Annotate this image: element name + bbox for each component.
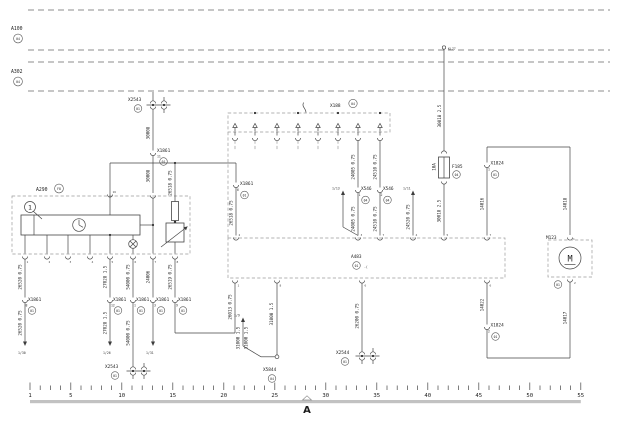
- wire-label-26520-dn: 26520 0.75: [18, 310, 23, 336]
- terminal-kl77-label: KL77: [448, 47, 456, 51]
- bus-a100-label: A100: [11, 26, 23, 32]
- page-ref-arrow-icon: [108, 342, 112, 347]
- section-bar: [30, 400, 581, 403]
- connector-x546-2-label: X546: [383, 186, 394, 192]
- fuse-upper-contact-icon: [441, 151, 446, 154]
- x188-pin-hooks: [232, 132, 382, 151]
- ruler-number: 30: [322, 393, 329, 399]
- wire-label-30018-lower: 30018 2.5: [437, 199, 442, 222]
- a290-bottom-pin-hook-icon: [44, 257, 49, 260]
- ruler-number: 50: [526, 393, 533, 399]
- motor-m123: M123 1 M 2 01: [546, 235, 592, 288]
- x188-label: X188: [330, 103, 341, 109]
- m123-pin1: 1: [573, 237, 575, 241]
- fuse-f185: [439, 157, 450, 178]
- connector-x1861-1-label: X1861: [136, 297, 150, 303]
- a290-pin-number: 1: [27, 260, 29, 264]
- connector-x546-2-pin: 2: [381, 193, 383, 197]
- ref: 01: [494, 335, 498, 339]
- ref: 01: [243, 194, 247, 198]
- ref: 01: [116, 309, 120, 313]
- connector-x2543-bottom-ref: 01: [113, 374, 117, 378]
- a483-pin: 8: [280, 284, 282, 288]
- connector-x2543-bottom-label: X2543: [105, 364, 119, 370]
- ruler-number: 20: [220, 393, 227, 399]
- wire-label-31000-b: 31000 1.5: [244, 326, 249, 349]
- socket-hook-icon: [22, 300, 27, 303]
- ref: 01: [159, 309, 163, 313]
- connector-x1861-11-label: X1861: [157, 148, 171, 154]
- splice-x5844-label: X5844: [263, 367, 277, 373]
- bus-a302-sheet-ref: 04: [16, 80, 20, 84]
- fuse-rating-label: 10A: [432, 163, 437, 171]
- section-label: A: [303, 405, 311, 416]
- connector-x2544-ref: 01: [343, 360, 347, 364]
- ref: 01: [493, 173, 497, 177]
- connector-x546-1-label: X546: [361, 186, 372, 192]
- wire-label-24510-dn: 24510 0.75: [373, 206, 378, 232]
- fuse-lower-contact-icon: [441, 182, 446, 185]
- connector-x546-1-pin: 1: [359, 193, 361, 197]
- connector-x2543-top: X2543 01 30008: [128, 92, 171, 151]
- bus-a100-sheet-ref: 04: [16, 37, 20, 41]
- ref: 01: [30, 309, 34, 313]
- socket-hook-icon: [130, 300, 135, 303]
- connector-x1861-8-pin: 8: [26, 304, 28, 308]
- connector-x2544: 26200 0.75 X2544 01: [336, 283, 380, 365]
- splice-x5844-ref: 04: [270, 377, 274, 381]
- connector-x1861-1-pin: 1: [134, 304, 136, 308]
- wire-label-27028-dn: 27028 1.5: [103, 311, 108, 334]
- wire-label-26520-up: 26520 0.75: [18, 264, 23, 290]
- callout-1-number: 1: [28, 204, 32, 212]
- fuse-f185-label: F185: [452, 164, 463, 170]
- page-ref-arrow-icon: [151, 342, 155, 347]
- connector-x1861-3-label: X1861: [156, 297, 170, 303]
- ruler: 1 5 10 15 20 25 30 35 40 45 50 55 A: [28, 383, 584, 417]
- a483-pin: 2: [239, 233, 241, 237]
- ruler-number: 45: [475, 393, 482, 399]
- a290-bottom-pin-hook-icon: [107, 257, 112, 260]
- connector-x546-pair: 24005 0.75 X546 1 04 24005 0.75 24510 0.…: [351, 141, 394, 236]
- page-ref-arrow-icon: [341, 191, 345, 196]
- component-a290-label: A290: [36, 187, 48, 193]
- a483-boundary: [228, 238, 505, 278]
- wire-label-14018: 14018: [563, 197, 568, 210]
- a483-pin: 1: [238, 284, 240, 288]
- a290-bottom-pin-hook-icon: [150, 257, 155, 260]
- wire-label-30018-upper: 30018 2.5: [437, 104, 442, 127]
- component-x188: X188 04: [228, 99, 390, 238]
- ref: 04: [386, 199, 390, 203]
- connector-x2543-top-ref: 01: [136, 107, 140, 111]
- connector-x2544-label: X2544: [336, 350, 350, 356]
- motor-letter: M: [567, 255, 572, 265]
- wire-label-26518-dn: 26518 0.75: [229, 200, 234, 226]
- wire-label-27028-up: 27028 1.5: [103, 265, 108, 288]
- bus-rails: A100 04 A302 04: [11, 10, 610, 91]
- wire-label-14022: 14022: [480, 298, 485, 311]
- connector-x2543-bottom: X2543 01: [105, 363, 151, 379]
- a483-pin: 6: [365, 284, 367, 288]
- splice-node-icon: [275, 355, 279, 359]
- connector-x1861-8-label: X1861: [28, 297, 42, 303]
- wire-label-30008-upper: 30008: [146, 126, 151, 139]
- a290-pin16-label: 16: [113, 190, 117, 194]
- ruler-number: 1: [28, 393, 31, 399]
- page-ref-1-30: 1/30: [18, 351, 26, 355]
- wire-label-54000-dn: 54000 0.75: [126, 320, 131, 346]
- page-ref-1-13: 1/13: [332, 187, 340, 191]
- a483-pin: 7: [383, 233, 385, 237]
- wire-label-24520: 24520 0.75: [406, 204, 411, 230]
- a483-label: A483: [351, 254, 362, 260]
- a290-pin-number: 3: [70, 260, 72, 264]
- a290-bottom-pin-hook-icon: [22, 257, 27, 260]
- wire-label-24005-up: 24005 0.75: [351, 154, 356, 180]
- page-ref-1-11: 1/11: [403, 187, 411, 191]
- socket-hook-icon: [150, 153, 155, 156]
- page-ref-arrow-icon: [411, 191, 415, 196]
- connector-x1824-1-pin: 1: [488, 168, 490, 172]
- a483-ref: 01: [355, 264, 359, 268]
- coil-link-icon: [303, 103, 306, 113]
- section-marker-icon: [303, 396, 312, 400]
- ruler-number: 55: [577, 393, 584, 399]
- socket-hook-icon: [172, 300, 177, 303]
- wire-label-14017: 14017: [563, 311, 568, 324]
- wire-label-31000-a: 31000 1.5: [236, 326, 241, 349]
- connector-x2543-top-label: X2543: [128, 97, 142, 103]
- ref: 01: [181, 309, 185, 313]
- a290-pin-number: 2: [49, 260, 51, 264]
- x1861-connector-row: 26520 0.75 X1861 8 01 26520 0.75 1/30 27…: [18, 259, 236, 363]
- lamp-icon: [129, 240, 138, 249]
- a483-pin: 4: [416, 233, 418, 237]
- a290-pin-number: 6: [135, 260, 137, 264]
- a290-element-bar: [21, 215, 140, 235]
- m123-pin2: 2: [574, 281, 576, 285]
- a290-bottom-pin-hook-icon: [65, 257, 70, 260]
- ref: 01: [139, 309, 143, 313]
- component-a483: A483 01 -( 2 3 7 4 5 7 1 8 6 6: [228, 233, 505, 288]
- schematic-canvas: A100 04 A302 04 KL77 30018 2.5 F185 10A …: [0, 0, 617, 423]
- a290-bottom-pin-hook-icon: [130, 257, 135, 260]
- wire-label-24510-up: 24510 0.75: [373, 154, 378, 180]
- connector-x1861-12-label: X1861: [113, 297, 127, 303]
- ruler-number: 15: [169, 393, 176, 399]
- fuse-sheet-ref: 04: [455, 173, 459, 177]
- m123-ref: 01: [556, 283, 560, 287]
- wire-label-30008-lower: 30008: [146, 169, 151, 182]
- component-a290: A290 F8 1 16 26518 0.75: [12, 162, 236, 264]
- connector-x1861-11-pin: 11: [157, 155, 161, 159]
- connector-x1861-9-label: X1861: [178, 297, 192, 303]
- ruler-number: 25: [271, 393, 278, 399]
- a483-pin: 3: [361, 233, 363, 237]
- page-ref-arrow-icon: [23, 342, 27, 347]
- a483-pin: 6: [490, 284, 492, 288]
- connector-x1861-12-pin: 12: [111, 304, 115, 308]
- a290-bottom-pin-hook-icon: [172, 257, 177, 260]
- component-a290-ref: F8: [57, 187, 61, 191]
- page-ref-1-9: 1/9: [234, 314, 240, 318]
- wire-label-26518-up: 26518 0.75: [168, 170, 173, 196]
- wiring-diagram-page: A100 04 A302 04 KL77 30018 2.5 F185 10A …: [0, 0, 617, 423]
- a290-bottom-pin-hook-icon: [87, 257, 92, 260]
- connector-x1861-3-pin: 3: [154, 304, 156, 308]
- connector-x1861-6: X1861 6 01 26518 0.75: [229, 163, 254, 236]
- a483-pin: 5: [447, 233, 449, 237]
- ruler-number: 5: [69, 393, 72, 399]
- connector-x1824-1-label: X1824: [491, 161, 505, 167]
- x188-boundary: [228, 113, 390, 132]
- wire-label-54000-up: 54000 0.75: [126, 264, 131, 290]
- socket-hook-icon: [150, 300, 155, 303]
- bus-a302-label: A302: [11, 69, 23, 75]
- a483-symbol: -(: [364, 265, 368, 269]
- connector-x1824-2-label: X1824: [491, 323, 505, 329]
- ruler-number: 40: [424, 393, 431, 399]
- power-feed-kl77: KL77 30018 2.5 F185 10A 04 30018 2.5: [432, 46, 463, 236]
- connector-x1861-11-ref: 01: [162, 160, 166, 164]
- ref: 04: [364, 199, 368, 203]
- connector-x1861-6-label: X1861: [240, 181, 254, 187]
- a290-pin-number: 5: [112, 260, 114, 264]
- connector-x1824-2-pin: 2: [488, 330, 490, 334]
- wire-label-26013: 26013 0.75: [228, 294, 233, 320]
- rheostat-icon: [161, 223, 188, 247]
- wire-label-26519: 26519 0.75: [168, 264, 173, 290]
- wire-label-26200: 26200 0.75: [355, 303, 360, 329]
- splice-x5844: 31000 1.5 1/9 31000 1.5 31000 1.5 X5844 …: [234, 283, 279, 382]
- a290-pin-number: 8: [177, 260, 179, 264]
- wire-label-24005-dn: 24005 0.75: [351, 206, 356, 232]
- page-ref-arrow-icon: [241, 318, 245, 323]
- bus-tap-node: [442, 46, 445, 49]
- clock-icon: [73, 219, 86, 232]
- motor-circuit: X1824 1 01 14016 14018 M123 1 M 2 01 140…: [480, 147, 593, 358]
- page-ref-1-26: 1/26: [103, 351, 111, 355]
- resistor-icon: [172, 202, 179, 221]
- ruler-number: 10: [118, 393, 125, 399]
- ruler-number: 35: [373, 393, 380, 399]
- x188-ref: 04: [351, 102, 355, 106]
- socket-hook-icon: [107, 300, 112, 303]
- wire-label-24006: 24006: [146, 270, 151, 283]
- page-ref-1-31: 1/31: [146, 351, 154, 355]
- wire-label-31000-main: 31000 1.5: [269, 302, 274, 325]
- a483-pin: 7: [490, 233, 492, 237]
- connector-x1861-9-pin: 9: [176, 304, 178, 308]
- m123-bottom-pin-hook-icon: [567, 280, 572, 283]
- a290-pin-number: 4: [92, 260, 94, 264]
- a290-pin-number: 7: [155, 260, 157, 264]
- wire-label-14016: 14016: [480, 197, 485, 210]
- connector-x1861-6-pin: 6: [237, 188, 239, 192]
- ruler-ticks: [30, 383, 581, 391]
